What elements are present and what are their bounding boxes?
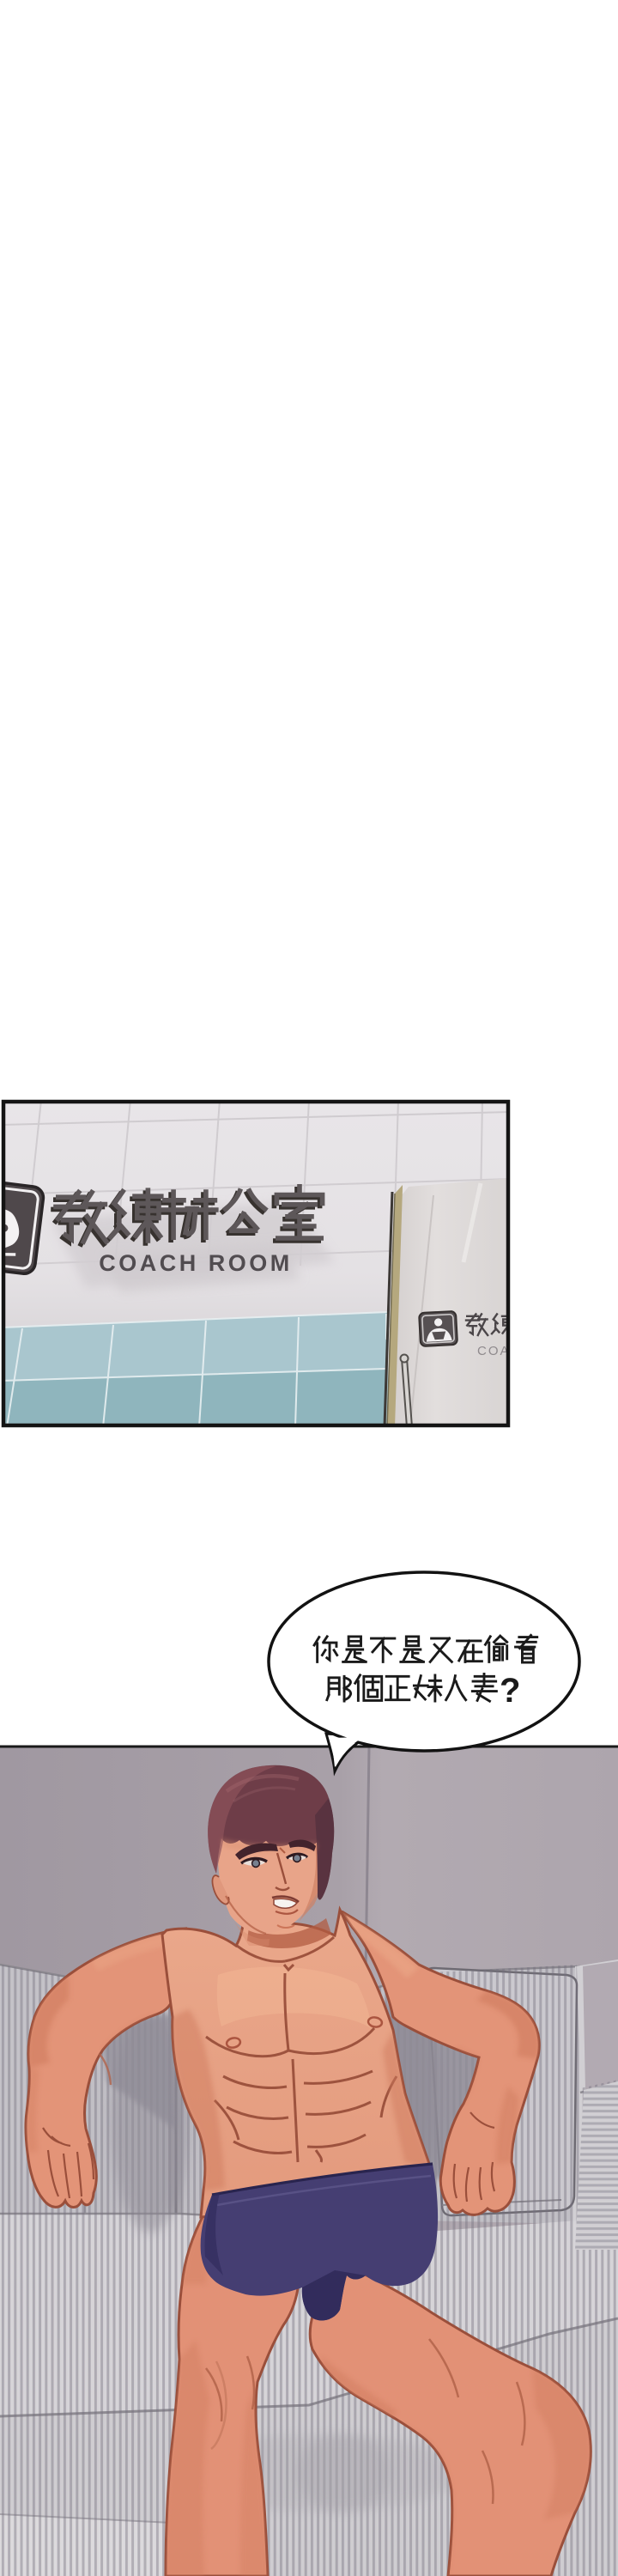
svg-text:?: ?	[500, 1672, 520, 1710]
svg-text:COACH ROOM: COACH ROOM	[99, 1250, 293, 1276]
svg-text:COACH: COACH	[477, 1344, 532, 1358]
